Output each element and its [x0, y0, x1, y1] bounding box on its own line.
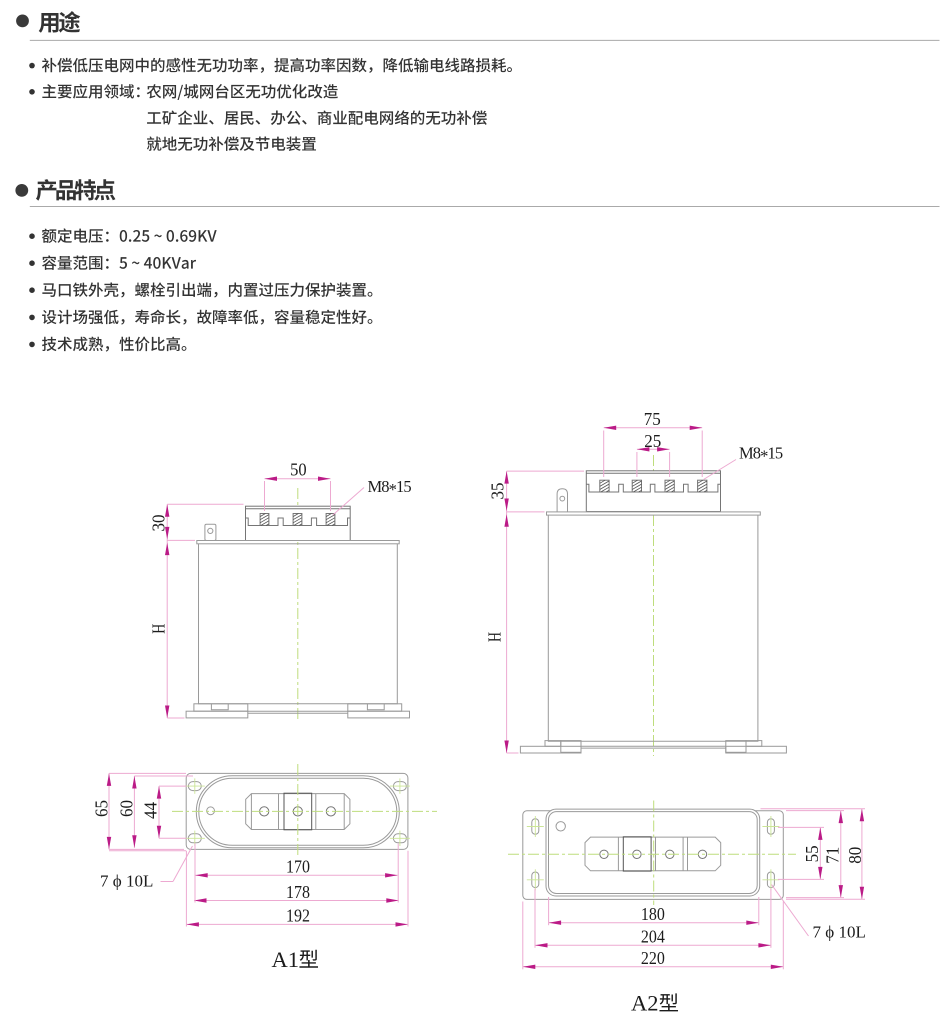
svg-text:180: 180: [641, 904, 665, 924]
svg-text:220: 220: [641, 948, 665, 968]
svg-text:A1: A1: [272, 947, 300, 972]
svg-text:60: 60: [117, 800, 137, 817]
svg-text:A2: A2: [631, 991, 659, 1016]
svg-text:50: 50: [290, 460, 307, 480]
svg-text:55: 55: [802, 845, 822, 862]
svg-text:M8*15: M8*15: [368, 477, 412, 499]
svg-text:30: 30: [148, 515, 168, 532]
svg-text:178: 178: [286, 882, 310, 902]
svg-text:H: H: [148, 624, 168, 634]
svg-text:7 ϕ 10L: 7 ϕ 10L: [813, 922, 866, 941]
svg-text:35: 35: [488, 483, 508, 500]
svg-text:71: 71: [822, 847, 842, 864]
svg-text:44: 44: [141, 802, 161, 819]
svg-text:M8*15: M8*15: [739, 444, 783, 466]
svg-text:7 ϕ 10L: 7 ϕ 10L: [100, 871, 153, 890]
svg-text:H: H: [485, 632, 505, 642]
svg-text:192: 192: [286, 906, 310, 926]
svg-text:75: 75: [644, 409, 661, 429]
svg-text:204: 204: [641, 927, 665, 947]
svg-text:170: 170: [286, 857, 310, 877]
